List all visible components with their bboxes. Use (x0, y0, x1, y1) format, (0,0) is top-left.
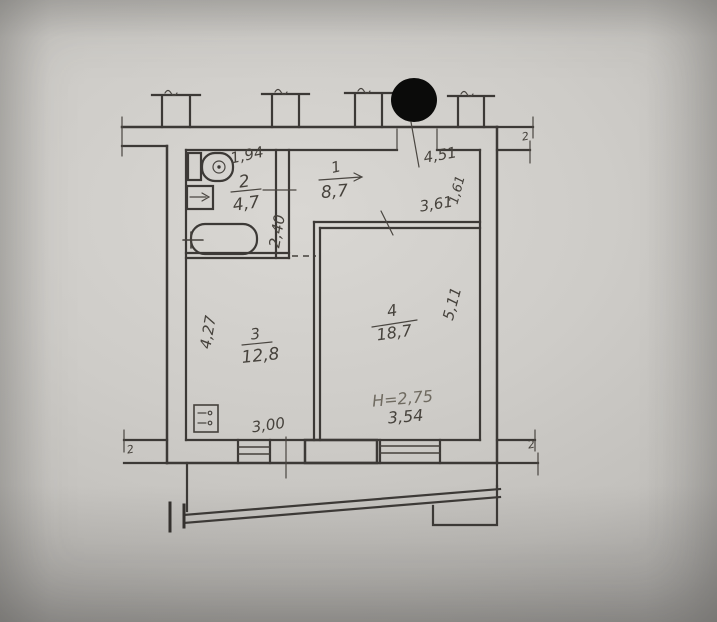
dim-room3-bottom-width: 3,00 (251, 414, 287, 436)
balcony-outline (170, 463, 500, 531)
floor-plan-photo: 1 8,7 2 4,7 3 12,8 4 18,7 1,94 2,40 4,51… (0, 0, 717, 622)
right-wall-stubs (497, 117, 538, 475)
room-4-number: 4 (385, 300, 398, 320)
dim-room3-left-depth: 4,27 (196, 314, 220, 350)
blackout-circle (391, 78, 437, 122)
wall-break-mark-top-right: 2 (521, 130, 530, 144)
window-left (238, 440, 270, 463)
stove-icon (194, 405, 218, 432)
neighbor-wall-stubs (152, 89, 494, 128)
room-3-label: 3 12,8 (241, 324, 281, 367)
room-1-label: 1 8,7 (319, 157, 362, 203)
dim-room4-top-width: 3,61 (418, 193, 454, 216)
room-4-area: 18,7 (375, 321, 414, 345)
sink-icon (187, 186, 213, 209)
room-4-label: 4 18,7 (372, 300, 417, 344)
window-right (380, 440, 440, 463)
room-3-area: 12,8 (241, 344, 281, 368)
room-2-area: 4,7 (232, 192, 262, 216)
room-2-number: 2 (238, 171, 252, 192)
dim-room4-bottom-width: 3,54 (387, 406, 424, 428)
leader-line (411, 122, 419, 167)
floor-plan: 1 8,7 2 4,7 3 12,8 4 18,7 1,94 2,40 4,51… (0, 0, 717, 622)
exterior-walls (122, 117, 497, 463)
room-1-number: 1 (329, 157, 342, 177)
dim-hall-width: 4,51 (422, 143, 458, 167)
room-2-label: 2 4,7 (231, 171, 261, 215)
wall-break-mark-bottom-left: 2 (126, 443, 135, 457)
dim-room4-right-depth: 5,11 (439, 285, 465, 322)
bathtub-icon (183, 224, 257, 254)
balcony-door (305, 440, 377, 463)
dim-bath-depth: 2,40 (265, 213, 289, 249)
room-3-number: 3 (249, 324, 261, 343)
dim-bath-top-width: 1,94 (229, 143, 265, 168)
room-1-area: 8,7 (320, 181, 349, 203)
toilet-icon (188, 153, 233, 181)
